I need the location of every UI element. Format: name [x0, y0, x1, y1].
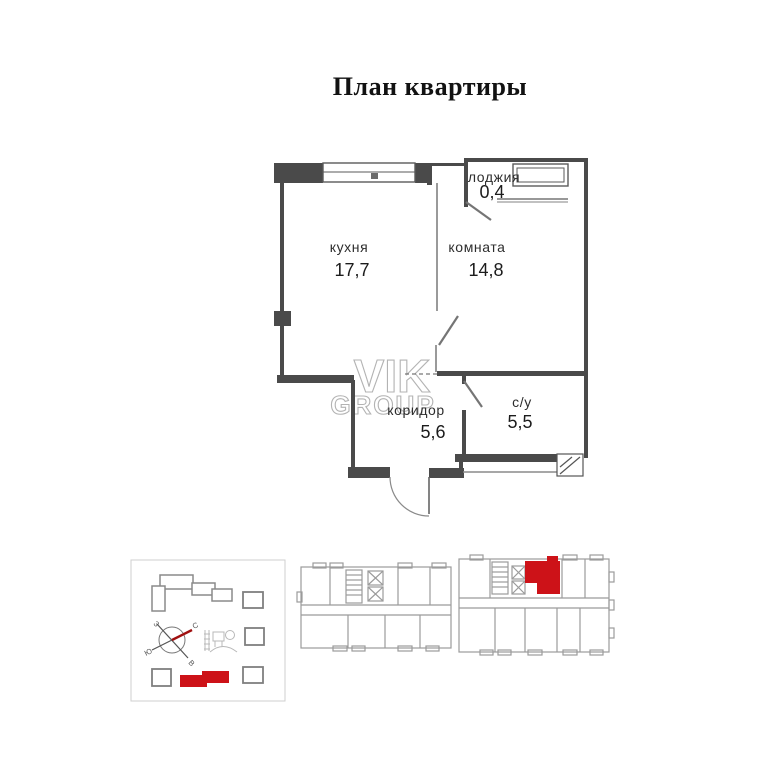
- stairs-icon-right: [492, 562, 508, 594]
- kitchen-window: [323, 163, 415, 182]
- vent-shaft: [557, 454, 583, 476]
- building-section-left: [297, 563, 451, 651]
- window-handle-icon: [371, 173, 378, 179]
- apartment-plan: кухня 17,7 комната 14,8 лоджия 0,4 корид…: [274, 158, 588, 516]
- bathroom-door-leaf: [464, 381, 482, 407]
- entry-door-arc: [390, 477, 429, 516]
- elevators-icon-left: [368, 571, 383, 601]
- highlighted-unit-balcony: [547, 556, 558, 561]
- corridor-label: коридор: [387, 402, 445, 418]
- room-label: комната: [448, 239, 505, 255]
- site-plan: З С В Ю: [131, 560, 285, 701]
- kitchen-area: 17,7: [334, 260, 369, 280]
- entry-door: [390, 477, 429, 516]
- floor-plan-page: План квартиры VIK GROUP: [0, 0, 774, 768]
- wc-area: 5,5: [507, 412, 532, 432]
- room-door-leaf: [439, 316, 458, 345]
- stairs-icon-left: [346, 570, 362, 603]
- corridor-area: 5,6: [420, 422, 445, 442]
- room-area: 14,8: [468, 260, 503, 280]
- balcony-door-leaf: [466, 202, 491, 220]
- loggia-area: 0,4: [479, 182, 504, 202]
- kitchen-label: кухня: [330, 239, 369, 255]
- plan-canvas: VIK GROUP: [0, 0, 774, 768]
- elevators-icon-right: [512, 566, 525, 594]
- windows-left: [297, 563, 446, 651]
- wc-label: с/у: [512, 394, 532, 410]
- building-section-right: [459, 555, 614, 655]
- walls-thin: [436, 183, 557, 472]
- highlighted-unit: [525, 561, 560, 594]
